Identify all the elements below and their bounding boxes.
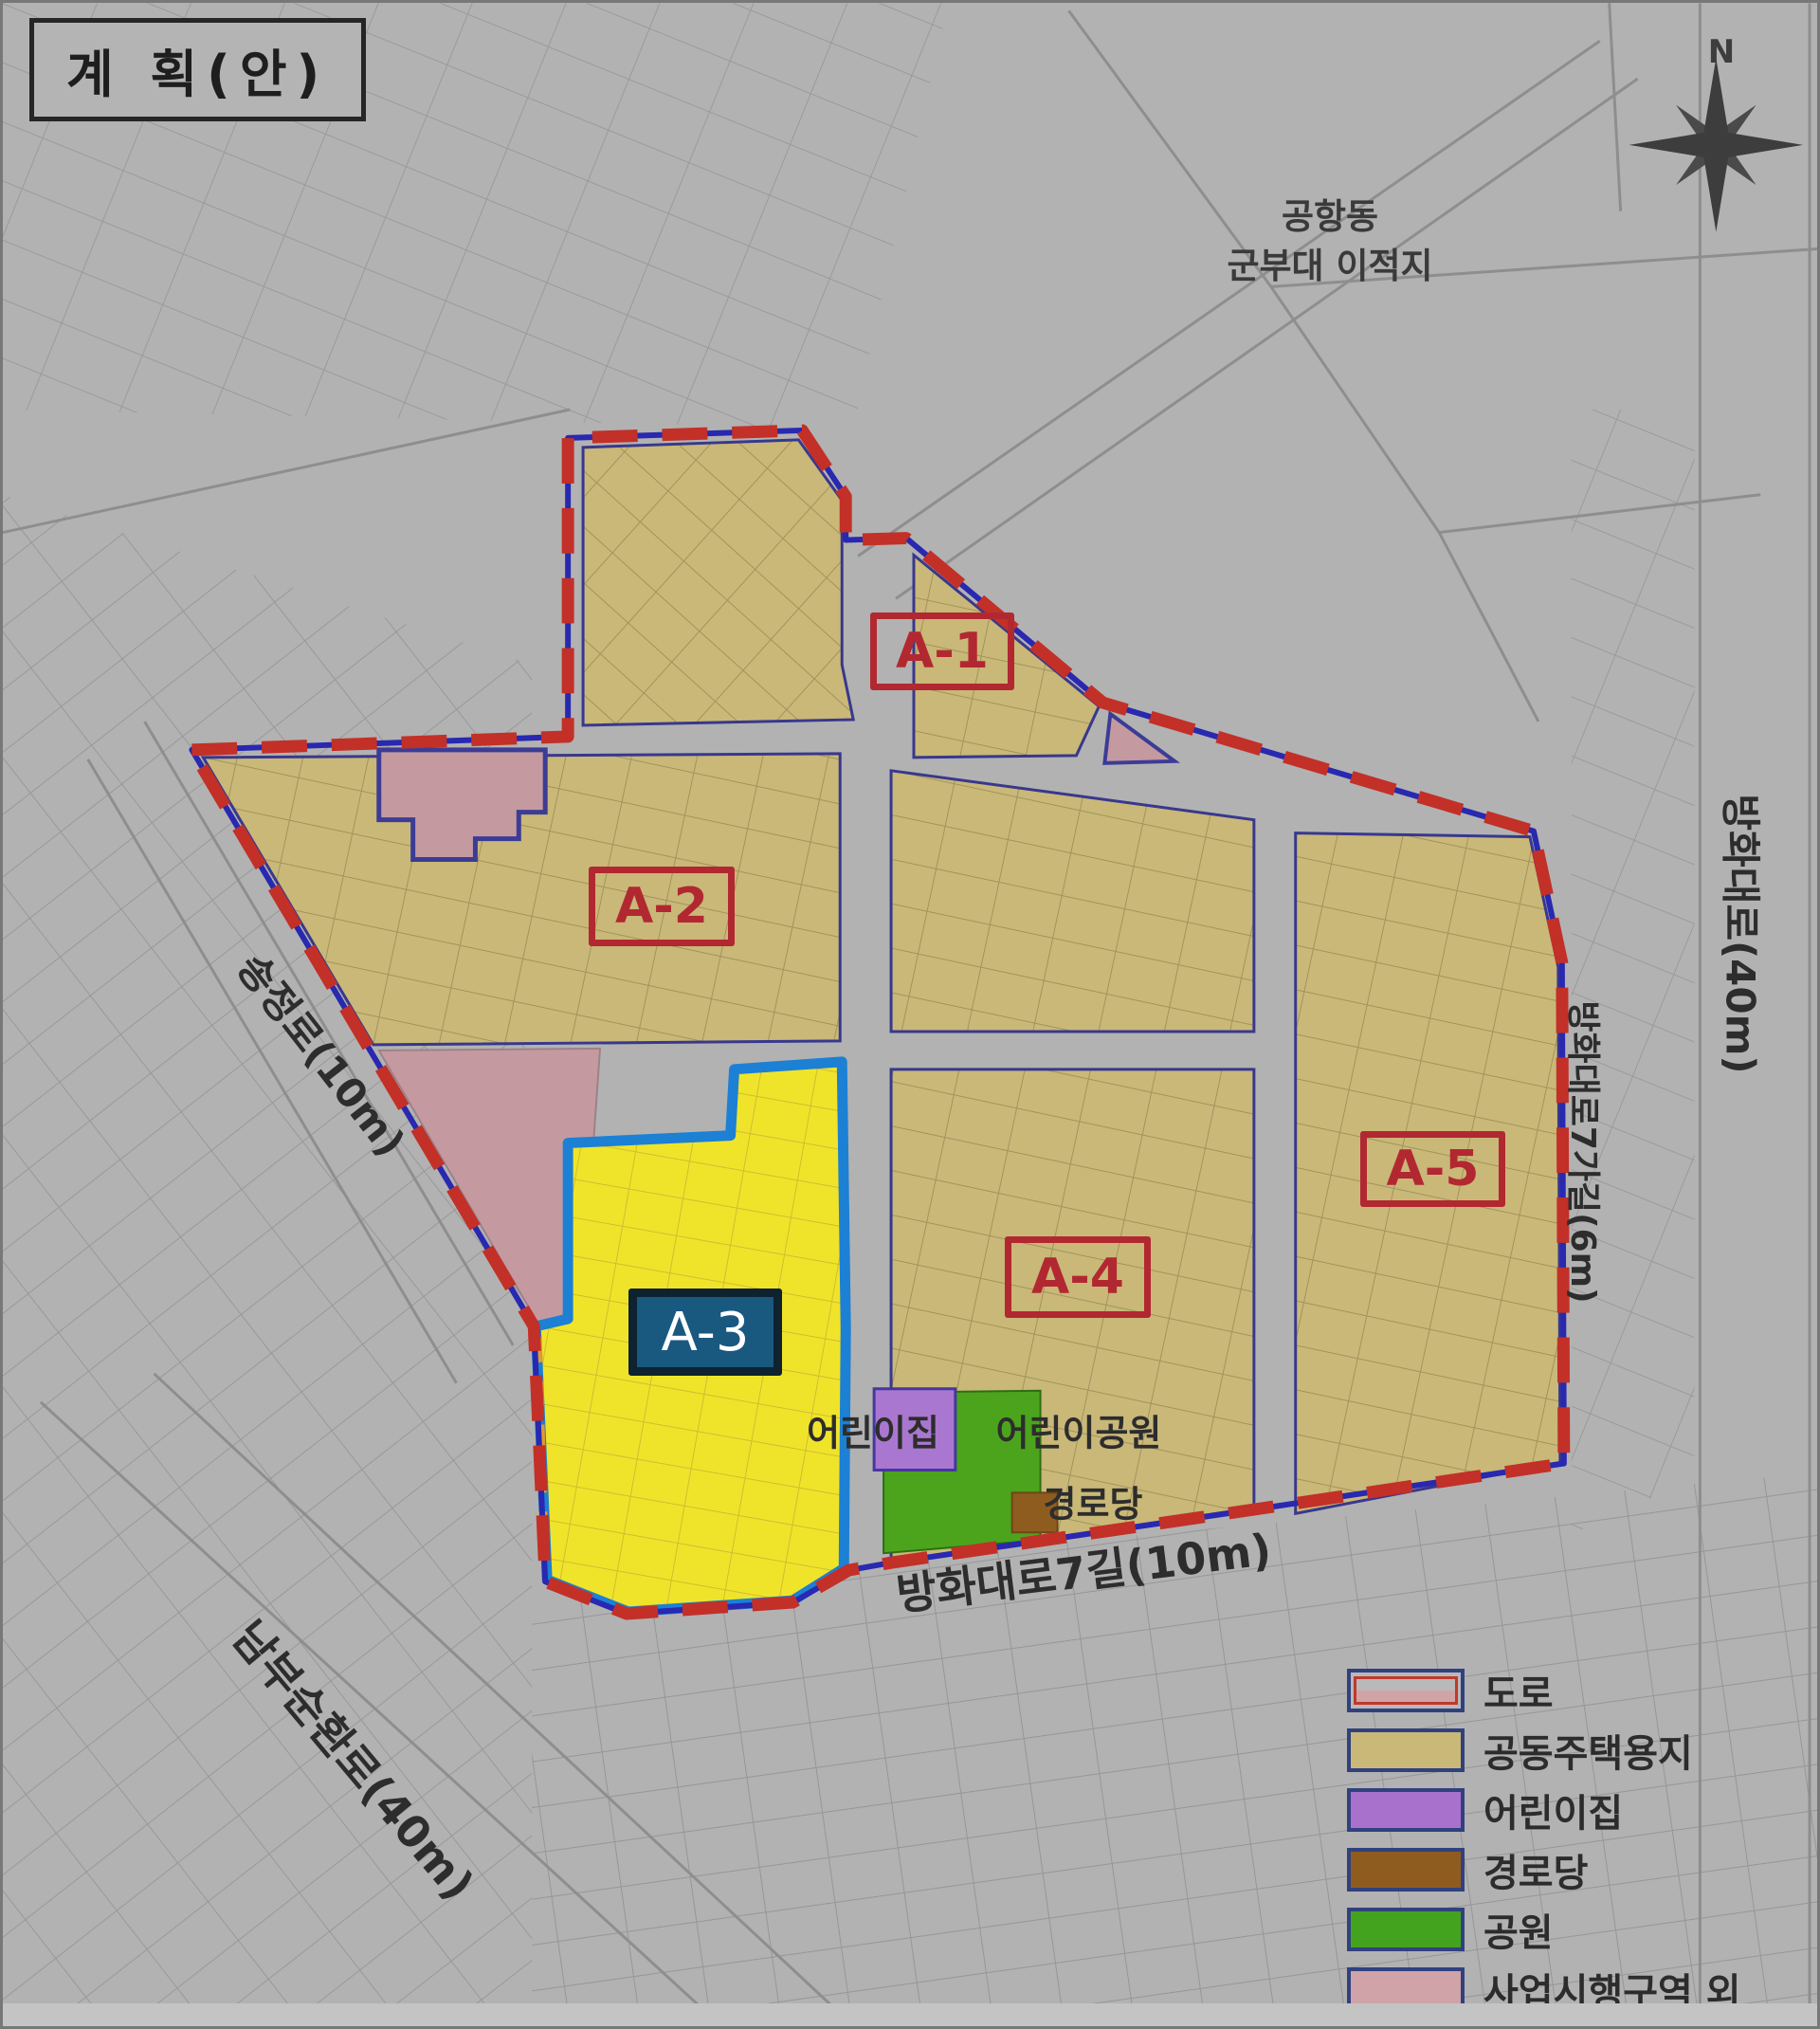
district-label-a4: A-4 (1005, 1236, 1151, 1318)
childrens-park-label: 어린이공원 (996, 1404, 1162, 1456)
legend-item-daycare: 어린이집 (1347, 1780, 1741, 1839)
legend-label-road: 도로 (1483, 1663, 1554, 1718)
legend-item-road: 도로 (1347, 1660, 1741, 1720)
legend-label-daycare: 어린이집 (1483, 1782, 1623, 1837)
airport-area-line1: 공항동 (1227, 192, 1432, 242)
road-label-banghwa-7gagil: 방화대로7가길(6m) (1561, 1000, 1611, 1303)
legend: 도로 공동주택용지 어린이집 경로당 공원 사업시행구역 외 (1347, 1660, 1741, 2019)
legend-swatch-road-stripe (1354, 1676, 1458, 1705)
district-label-a2: A-2 (589, 867, 735, 946)
district-a2-north-lobe (583, 440, 853, 725)
legend-swatch-senior-center (1347, 1848, 1465, 1892)
legend-label-housing: 공동주택용지 (1483, 1723, 1693, 1778)
legend-item-park: 공원 (1347, 1899, 1741, 1959)
legend-item-housing: 공동주택용지 (1347, 1720, 1741, 1780)
north-label: N (1708, 33, 1735, 71)
legend-swatch-housing (1347, 1728, 1465, 1772)
plan-map-canvas: 계 획(안) N 공항동 군부대 이적지 A-1 A-2 A-3 A-4 A-5… (0, 0, 1820, 2029)
legend-swatch-park (1347, 1908, 1465, 1951)
district-label-a3: A-3 (628, 1289, 782, 1376)
cadastral-east (1572, 410, 1695, 1534)
legend-label-senior-center: 경로당 (1483, 1842, 1588, 1897)
road-label-banghwa-daero: 방화대로(40m) (1715, 794, 1773, 1073)
legend-swatch-road (1347, 1669, 1465, 1712)
legend-label-park: 공원 (1483, 1902, 1554, 1957)
legend-swatch-daycare (1347, 1788, 1465, 1832)
cadastral-west (3, 495, 532, 2026)
senior-center-label: 경로당 (1044, 1475, 1143, 1527)
plan-title: 계 획(안) (29, 18, 366, 121)
district-label-a5: A-5 (1360, 1131, 1505, 1207)
airport-area-annotation: 공항동 군부대 이적지 (1227, 192, 1432, 291)
district-label-a1: A-1 (870, 612, 1014, 690)
daycare-label: 어린이집 (807, 1404, 939, 1456)
airport-area-line2: 군부대 이적지 (1227, 242, 1432, 291)
legend-item-senior-center: 경로당 (1347, 1839, 1741, 1899)
bottom-margin-band (3, 2003, 1820, 2029)
